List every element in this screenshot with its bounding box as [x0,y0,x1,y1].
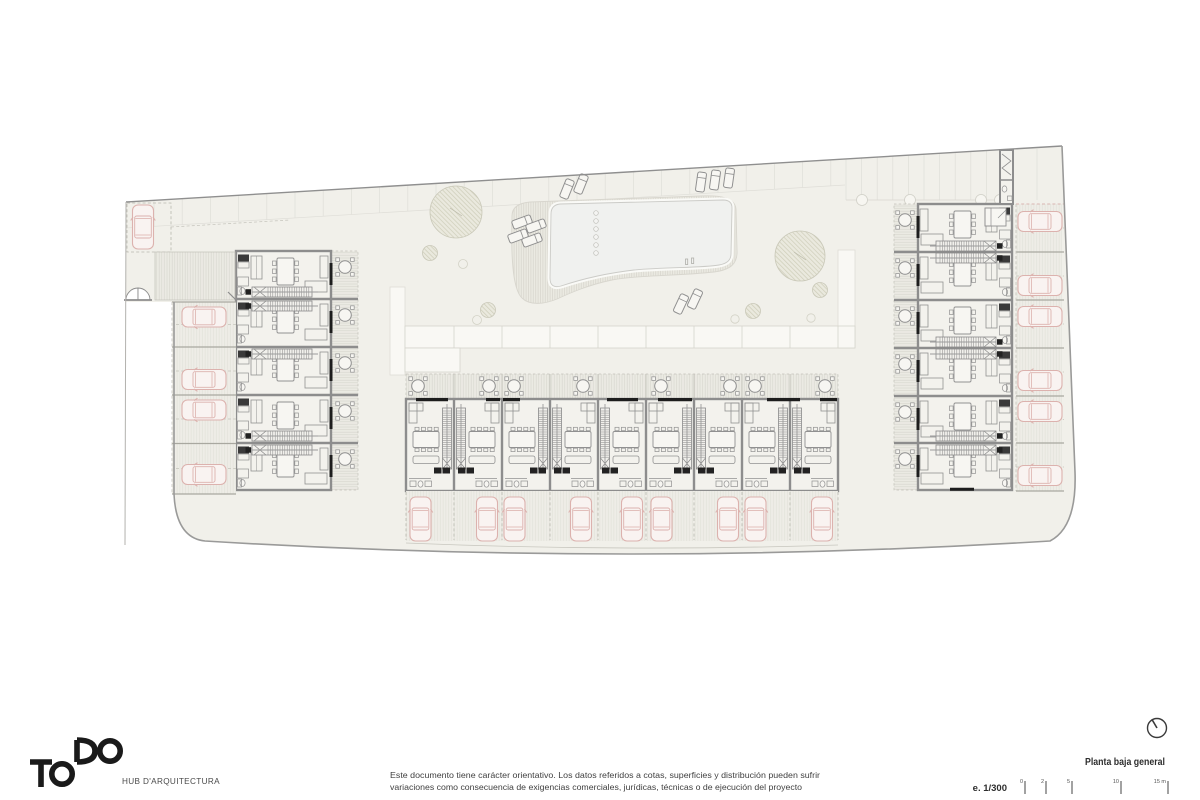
svg-text:Este documento tiene carácter: Este documento tiene carácter orientativ… [390,770,820,780]
svg-text:0: 0 [1020,779,1023,785]
svg-text:variaciones como consecuencia: variaciones como consecuencia de exigenc… [390,782,802,792]
svg-text:10: 10 [1113,779,1119,785]
svg-text:5: 5 [1067,779,1070,785]
svg-text:HUB D'ARQUITECTURA: HUB D'ARQUITECTURA [122,777,220,786]
svg-text:15 m: 15 m [1154,779,1167,785]
svg-text:Planta baja general: Planta baja general [1085,757,1165,768]
svg-text:2: 2 [1041,779,1044,785]
svg-text:e. 1/300: e. 1/300 [973,783,1007,794]
